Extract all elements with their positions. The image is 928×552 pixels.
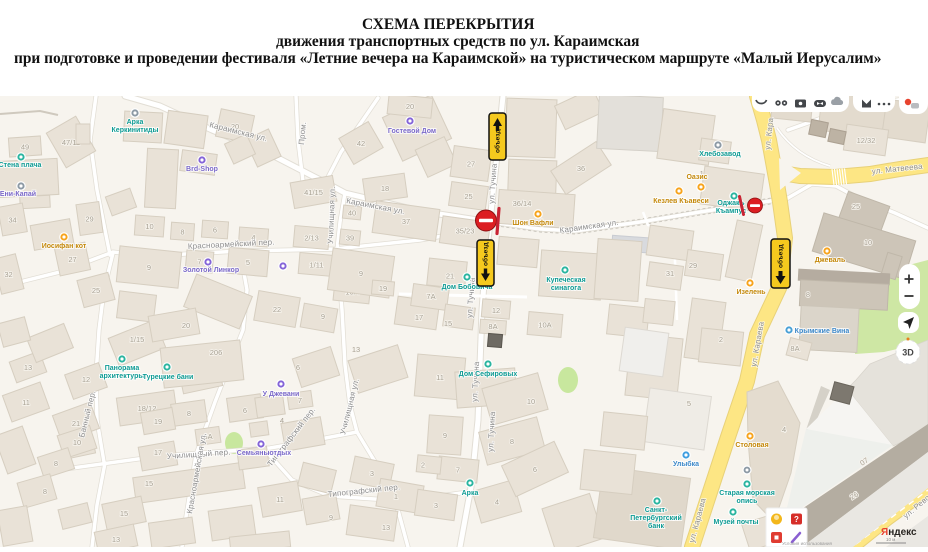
- svg-text:12: 12: [492, 306, 500, 315]
- svg-text:8А: 8А: [488, 322, 497, 331]
- svg-text:39: 39: [346, 234, 354, 243]
- svg-text:10 м: 10 м: [886, 537, 895, 542]
- svg-text:20: 20: [182, 321, 190, 330]
- svg-text:Условия использования: Условия использования: [782, 541, 833, 546]
- svg-text:Ени-Капай: Ени-Капай: [0, 190, 36, 198]
- svg-text:3: 3: [434, 501, 438, 510]
- svg-text:Стена плача: Стена плача: [0, 162, 42, 169]
- svg-text:12/32: 12/32: [857, 136, 876, 145]
- svg-text:8: 8: [187, 409, 191, 418]
- svg-text:29: 29: [689, 261, 697, 270]
- svg-text:11: 11: [22, 398, 30, 407]
- svg-text:25: 25: [92, 286, 100, 295]
- svg-text:36: 36: [577, 164, 585, 173]
- svg-text:5: 5: [246, 258, 250, 267]
- svg-text:синагога: синагога: [551, 285, 581, 292]
- svg-text:9: 9: [443, 431, 447, 440]
- svg-text:29: 29: [85, 215, 93, 224]
- svg-text:3: 3: [370, 469, 374, 478]
- svg-text:13: 13: [382, 523, 390, 532]
- svg-text:17: 17: [154, 448, 162, 457]
- svg-text:13: 13: [24, 363, 32, 372]
- svg-text:7: 7: [456, 466, 460, 475]
- svg-text:49: 49: [21, 143, 29, 152]
- svg-text:8: 8: [180, 228, 184, 237]
- svg-text:6: 6: [243, 406, 247, 415]
- svg-text:27: 27: [68, 255, 76, 264]
- svg-text:40: 40: [348, 209, 356, 218]
- svg-text:банк: банк: [648, 522, 664, 530]
- svg-text:17: 17: [415, 313, 423, 322]
- svg-text:1: 1: [394, 492, 398, 501]
- svg-text:Керкинитиды: Керкинитиды: [112, 127, 159, 134]
- svg-text:объезд: объезд: [494, 129, 502, 153]
- svg-text:архитектуры: архитектуры: [100, 373, 145, 380]
- svg-text:3D: 3D: [902, 348, 914, 358]
- svg-text:20: 20: [406, 102, 414, 111]
- svg-text:8: 8: [510, 437, 514, 446]
- svg-text:объезд: объезд: [777, 244, 785, 268]
- svg-text:9: 9: [321, 312, 325, 321]
- svg-text:4: 4: [782, 425, 786, 434]
- svg-text:объезд: объезд: [482, 242, 490, 266]
- svg-text:9: 9: [359, 269, 363, 278]
- svg-text:12: 12: [82, 375, 90, 384]
- svg-text:Улыбка: Улыбка: [673, 460, 699, 468]
- svg-text:Семьяныотдых: Семьяныотдых: [237, 450, 291, 457]
- svg-text:Купеческая: Купеческая: [546, 277, 585, 284]
- svg-text:Шон Вафли: Шон Вафли: [512, 220, 553, 227]
- svg-text:6: 6: [213, 226, 217, 235]
- svg-text:21: 21: [446, 272, 454, 281]
- svg-text:35/23: 35/23: [456, 227, 475, 236]
- svg-text:10: 10: [864, 238, 872, 247]
- svg-text:1/15: 1/15: [130, 335, 145, 344]
- svg-text:8: 8: [54, 459, 58, 468]
- svg-text:25: 25: [464, 192, 472, 201]
- svg-text:15: 15: [444, 319, 452, 328]
- svg-text:10А: 10А: [538, 321, 551, 330]
- svg-text:Иосифан кот: Иосифан кот: [42, 243, 87, 250]
- svg-text:13: 13: [352, 345, 360, 354]
- svg-text:41/15: 41/15: [304, 188, 323, 197]
- svg-text:10: 10: [73, 438, 81, 447]
- svg-text:6: 6: [296, 363, 300, 372]
- svg-text:Арка: Арка: [462, 490, 479, 497]
- svg-text:9: 9: [329, 513, 333, 522]
- svg-text:42: 42: [357, 139, 365, 148]
- svg-text:10: 10: [527, 397, 535, 406]
- svg-text:11: 11: [436, 373, 444, 382]
- svg-text:Столовая: Столовая: [735, 442, 768, 449]
- svg-text:4: 4: [495, 498, 499, 507]
- svg-text:?: ?: [794, 515, 799, 524]
- svg-text:Арка: Арка: [127, 119, 144, 126]
- svg-text:Кезлев Къавеси: Кезлев Къавеси: [653, 198, 709, 205]
- svg-text:8: 8: [43, 487, 47, 496]
- svg-text:Санкт-: Санкт-: [645, 507, 668, 514]
- svg-text:1/11: 1/11: [309, 261, 323, 270]
- svg-text:7: 7: [197, 258, 201, 267]
- svg-text:8А: 8А: [790, 344, 799, 353]
- svg-text:Хлебозавод: Хлебозавод: [699, 150, 741, 158]
- svg-text:2/13: 2/13: [304, 234, 319, 243]
- svg-text:У Джевани: У Джевани: [263, 391, 300, 398]
- svg-text:31: 31: [666, 269, 674, 278]
- svg-text:Петербургский: Петербургский: [630, 514, 682, 522]
- svg-text:32: 32: [4, 270, 12, 279]
- svg-text:10: 10: [145, 222, 153, 231]
- svg-text:5: 5: [687, 399, 691, 408]
- svg-text:Изелень: Изелень: [736, 289, 766, 296]
- svg-text:Турецкие бани: Турецкие бани: [143, 373, 194, 381]
- svg-text:Музей почты: Музей почты: [714, 518, 759, 526]
- svg-text:2: 2: [719, 335, 723, 344]
- svg-text:11: 11: [276, 495, 284, 504]
- svg-text:36/14: 36/14: [513, 199, 532, 208]
- svg-text:7А: 7А: [426, 292, 435, 301]
- svg-text:6: 6: [533, 465, 537, 474]
- svg-text:18: 18: [381, 184, 389, 193]
- svg-text:Джеваль: Джеваль: [815, 257, 846, 264]
- svg-text:9: 9: [147, 263, 151, 272]
- svg-text:34: 34: [8, 216, 16, 225]
- svg-text:15: 15: [120, 509, 128, 518]
- svg-text:Brd-Shop: Brd-Shop: [186, 166, 218, 173]
- svg-text:Панорама: Панорама: [105, 365, 140, 372]
- svg-text:37: 37: [402, 217, 410, 226]
- svg-text:Крымские Вина: Крымские Вина: [795, 328, 850, 335]
- svg-text:Старая морская: Старая морская: [719, 490, 775, 497]
- svg-text:8: 8: [806, 290, 810, 299]
- svg-text:19: 19: [154, 417, 162, 426]
- svg-text:22: 22: [273, 305, 281, 314]
- svg-text:206: 206: [210, 348, 223, 357]
- svg-text:13: 13: [112, 535, 120, 544]
- svg-text:27: 27: [467, 160, 475, 169]
- svg-text:Гостевой Дом: Гостевой Дом: [388, 127, 436, 135]
- svg-text:Дом Сефировых: Дом Сефировых: [459, 371, 518, 378]
- svg-text:2: 2: [421, 461, 425, 470]
- svg-text:Оазис: Оазис: [686, 174, 707, 181]
- svg-text:19: 19: [379, 284, 387, 293]
- svg-text:15: 15: [145, 479, 153, 488]
- svg-text:опись: опись: [736, 498, 758, 505]
- svg-text:Золотой Линкор: Золотой Линкор: [183, 266, 239, 274]
- svg-text:25: 25: [852, 202, 860, 211]
